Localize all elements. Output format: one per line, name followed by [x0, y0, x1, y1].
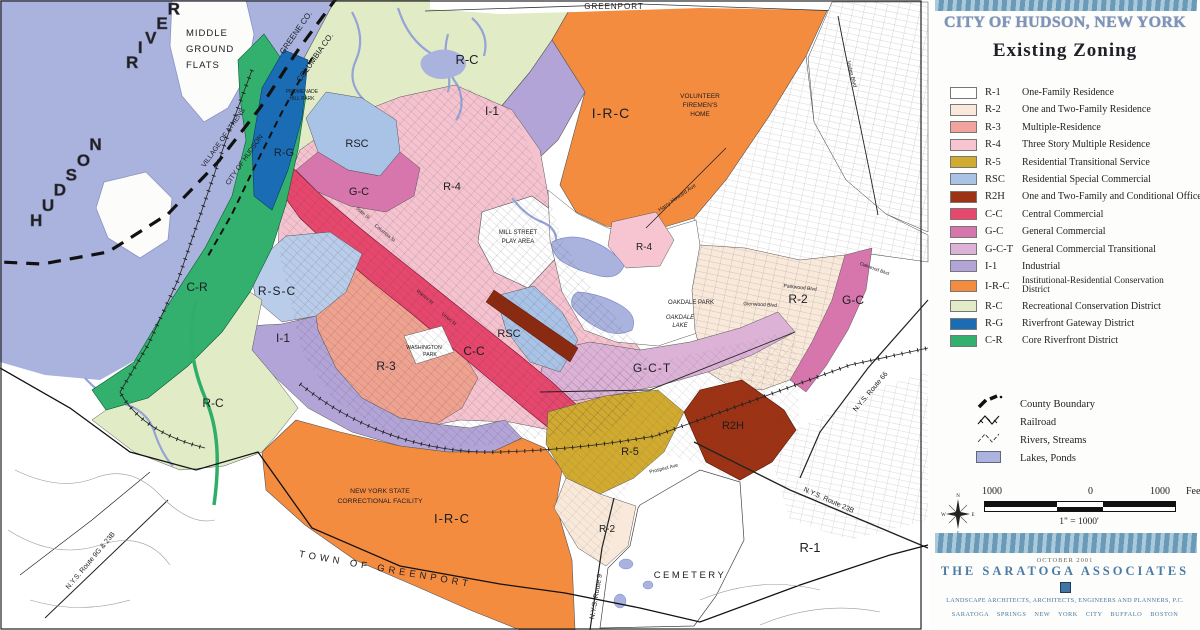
legend-label: Institutional-Residential Conservation D… [1022, 277, 1180, 295]
symbol-label: Lakes, Ponds [1020, 453, 1076, 464]
scale-bar-block: N W E S 1000 0 1000 Feet 1" = 1000' [938, 486, 1196, 536]
legend-code: R-G [985, 318, 1022, 329]
label-zone-rg: R-G [274, 147, 294, 159]
label-zone-r1: R-1 [800, 540, 821, 555]
label-zone-r4: R-4 [443, 181, 461, 193]
compass-w: W [941, 513, 946, 518]
zoning-map-page: HUDSON RIVER MIDDLE GROUND FLATS GREENE … [0, 0, 1200, 630]
rivers-streams-icon [976, 430, 1012, 451]
legend-item-rg: R-GRiverfront Gateway District [950, 317, 1198, 330]
legend-item-r2h: R2HOne and Two-Family and Conditional Of… [950, 190, 1198, 203]
label-zone-gc-east: G-C [842, 293, 864, 307]
legend-code: R-3 [985, 122, 1022, 133]
swatch-rg [950, 318, 977, 330]
label-hill-park: HILL PARK [289, 96, 315, 102]
legend-label: One and Two-Family and Conditional Offic… [1022, 191, 1200, 202]
legend-item-i1: I-1Industrial [950, 260, 1198, 273]
label-middle: MIDDLE [186, 28, 228, 39]
scale-unit: Feet [1186, 486, 1200, 497]
label-zone-cr: C-R [186, 280, 208, 294]
legend-item-rsc: RSCResidential Special Commercial [950, 173, 1198, 186]
legend-item-irc: I-R-CInstitutional-Residential Conservat… [950, 277, 1198, 295]
swatch-r5 [950, 156, 977, 168]
legend-item-gc: G-CGeneral Commercial [950, 225, 1198, 238]
swatch-r3 [950, 121, 977, 133]
legend-item-r4: R-4Three Story Multiple Residence [950, 138, 1198, 151]
label-zone-i1-south: I-1 [276, 331, 290, 345]
city-map: HUDSON RIVER MIDDLE GROUND FLATS GREENE … [0, 0, 930, 630]
label-zone-irc-north: I-R-C [592, 105, 630, 121]
label-park: PARK [423, 352, 437, 358]
legend-label: Industrial [1022, 261, 1060, 272]
symbol-lakes-ponds: Lakes, Ponds [976, 451, 1198, 466]
symbol-county-boundary: County Boundary [976, 397, 1198, 412]
label-zone-r2h: R2H [722, 420, 744, 432]
legend-code: RSC [985, 174, 1022, 185]
panel-divider-bar [935, 533, 1197, 553]
legend-item-cr: C-RCore Riverfront District [950, 334, 1198, 347]
cemetery-pond-3 [643, 581, 653, 589]
label-volunteer: VOLUNTEER [680, 93, 720, 100]
scale-zero: 0 [1088, 486, 1093, 497]
lakes-ponds-icon [976, 450, 1012, 468]
legend-code: G-C [985, 226, 1022, 237]
legend-label: Three Story Multiple Residence [1022, 139, 1150, 150]
zoning-legend: R-1One-Family Residence R-2One and Two-F… [950, 86, 1198, 352]
swatch-rc [950, 300, 977, 312]
legend-code: R-1 [985, 87, 1022, 98]
legend-code: R2H [985, 191, 1022, 202]
scale-bar [984, 501, 1176, 512]
label-zone-i1-north: I-1 [485, 104, 499, 118]
swatch-cc [950, 208, 977, 220]
legend-item-gct: G-C-TGeneral Commercial Transitional [950, 243, 1198, 256]
legend-label: Residential Special Commercial [1022, 174, 1151, 185]
label-nys-correctional-2: CORRECTIONAL FACILITY [337, 498, 423, 505]
compass-n: N [956, 494, 960, 499]
credits-date: OCTOBER 2001 [930, 557, 1200, 564]
swatch-i1 [950, 260, 977, 272]
legend-code: G-C-T [985, 244, 1022, 255]
legend-item-cc: C-CCentral Commercial [950, 208, 1198, 221]
label-washington: WASHINGTON [406, 345, 442, 351]
label-zone-r2-south: R-2 [599, 524, 616, 535]
label-mill-street: MILL STREET [499, 230, 538, 236]
label-zone-gct: G-C-T [633, 361, 671, 375]
swatch-r2 [950, 104, 977, 116]
swatch-cr [950, 335, 977, 347]
legend-code: R-C [985, 301, 1022, 312]
scale-left: 1000 [982, 486, 1002, 497]
symbol-railroad: Railroad [976, 415, 1198, 430]
label-zone-gc-upper: G-C [349, 186, 369, 198]
label-zone-rc-north: R-C [455, 52, 478, 67]
symbol-label: Rivers, Streams [1020, 435, 1087, 446]
page-title: CITY OF HUDSON, NEW YORK [930, 14, 1200, 32]
swatch-gc [950, 226, 977, 238]
legend-label: One-Family Residence [1022, 87, 1114, 98]
panel-top-bar [935, 0, 1197, 11]
legend-label: Core Riverfront District [1022, 335, 1118, 346]
label-home: HOME [690, 111, 710, 118]
firm-logo [1060, 582, 1071, 593]
symbol-label: County Boundary [1020, 399, 1095, 410]
legend-label: Residential Transitional Service [1022, 157, 1150, 168]
label-zone-cc: C-C [463, 344, 485, 358]
swatch-r4 [950, 139, 977, 151]
label-promenade: PROMENADE [286, 89, 319, 95]
swatch-irc [950, 280, 977, 292]
label-play-area: PLAY AREA [502, 239, 534, 245]
legend-code: I-R-C [985, 281, 1022, 292]
label-zone-rc-south: R-C [202, 396, 224, 410]
label-zone-r4-east: R-4 [636, 242, 653, 253]
legend-label: Recreational Conservation District [1022, 301, 1161, 312]
label-zone-r2-east: R-2 [788, 292, 808, 306]
legend-item-rc: R-CRecreational Conservation District [950, 300, 1198, 313]
legend-code: R-5 [985, 157, 1022, 168]
credits-line2: SARATOGA SPRINGS NEW YORK CITY BUFFALO B… [930, 611, 1200, 618]
legend-label: Multiple-Residence [1022, 122, 1101, 133]
legend-label: General Commercial [1022, 226, 1106, 237]
legend-item-r2: R-2One and Two-Family Residence [950, 103, 1198, 116]
label-zone-irc-south: I-R-C [434, 511, 470, 526]
legend-panel: CITY OF HUDSON, NEW YORK Existing Zoning… [930, 0, 1200, 630]
symbol-rivers-streams: Rivers, Streams [976, 433, 1198, 448]
legend-item-r1: R-1One-Family Residence [950, 86, 1198, 99]
cemetery-pond-2 [614, 594, 626, 608]
credits-firm: THE SARATOGA ASSOCIATES [930, 564, 1200, 579]
scale-right: 1000 [1150, 486, 1170, 497]
swatch-r2h [950, 191, 977, 203]
label-greenport-top: GREENPORT [584, 2, 644, 11]
legend-item-r5: R-5Residential Transitional Service [950, 156, 1198, 169]
credits-line1: LANDSCAPE ARCHITECTS, ARCHITECTS, ENGINE… [930, 597, 1200, 604]
swatch-rsc [950, 173, 977, 185]
swatch-gct [950, 243, 977, 255]
symbol-label: Railroad [1020, 417, 1056, 428]
legend-label: General Commercial Transitional [1022, 244, 1156, 255]
label-zone-rsc-upper: RSC [345, 138, 368, 150]
symbols-legend: County Boundary Railroad Rivers, Streams… [976, 397, 1198, 469]
swatch-r1 [950, 87, 977, 99]
legend-code: I-1 [985, 261, 1022, 272]
label-nys-correctional-1: NEW YORK STATE [350, 488, 410, 495]
legend-code: R-2 [985, 104, 1022, 115]
label-flats: FLATS [186, 60, 220, 71]
page-subtitle: Existing Zoning [930, 40, 1200, 62]
legend-label: Riverfront Gateway District [1022, 318, 1134, 329]
label-zone-rsc-west: R-S-C [258, 284, 296, 298]
legend-code: C-R [985, 335, 1022, 346]
legend-code: R-4 [985, 139, 1022, 150]
legend-label: Central Commercial [1022, 209, 1103, 220]
label-firemens: FIREMEN'S [683, 102, 718, 109]
lakes-swatch [976, 451, 1001, 463]
cemetery-pond-1 [619, 559, 633, 569]
label-cemetery: CEMETERY [654, 570, 727, 581]
label-ground: GROUND [186, 44, 234, 55]
legend-label: One and Two-Family Residence [1022, 104, 1151, 115]
label-zone-r3: R-3 [376, 359, 396, 373]
label-oakdale-park: OAKDALE PARK [668, 300, 714, 306]
legend-item-r3: R-3Multiple-Residence [950, 121, 1198, 134]
label-oakdale: OAKDALE [666, 315, 695, 321]
label-lake: LAKE [672, 323, 688, 329]
compass-e: E [971, 513, 974, 518]
label-zone-r5: R-5 [621, 446, 639, 458]
compass-rose: N W E S [940, 490, 976, 539]
scale-ratio: 1" = 1000' [984, 517, 1174, 527]
label-zone-rsc-center: RSC [497, 328, 520, 340]
legend-code: C-C [985, 209, 1022, 220]
